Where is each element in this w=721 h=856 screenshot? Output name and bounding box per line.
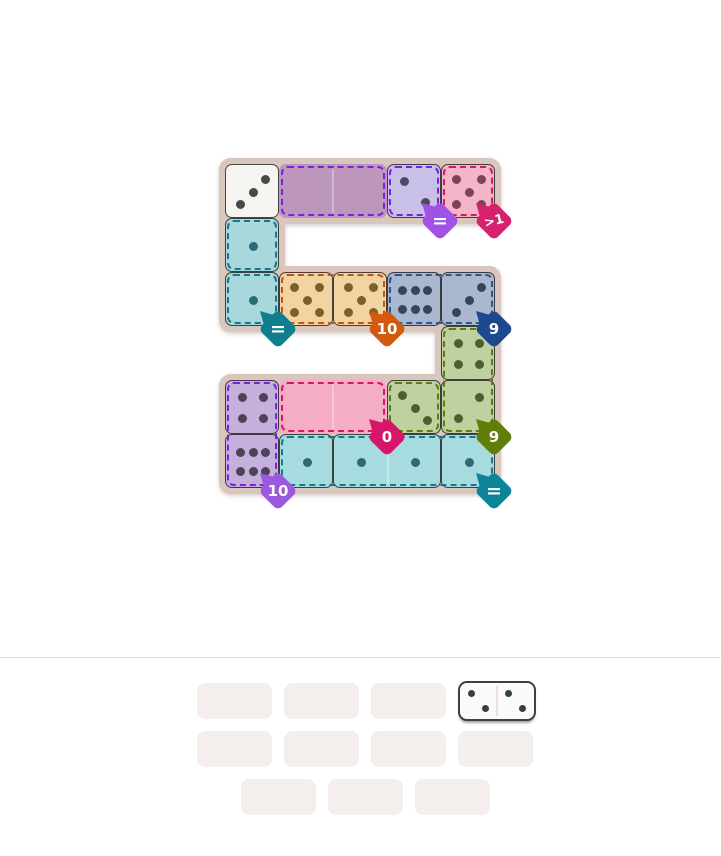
pip xyxy=(236,448,245,457)
constraint-sum-9-olive: 9 xyxy=(474,417,514,457)
tray-slot-1-1[interactable] xyxy=(197,683,272,719)
tray-slot-3-2[interactable] xyxy=(328,779,403,815)
pip xyxy=(519,705,526,712)
tray-domino-right-half xyxy=(497,683,534,719)
tray-slot-1-2[interactable] xyxy=(284,683,359,719)
pip xyxy=(315,308,324,317)
constraint-greater-than-1: >1 xyxy=(474,201,514,241)
tray-slot-1-3[interactable] xyxy=(371,683,446,719)
board-cell-r5c1[interactable] xyxy=(225,380,279,434)
pip xyxy=(465,188,474,197)
board-cell-r2c1[interactable] xyxy=(225,218,279,272)
board-cell-r1c1[interactable] xyxy=(225,164,279,218)
pip xyxy=(249,296,258,305)
pip xyxy=(411,404,420,413)
pip xyxy=(482,705,489,712)
tray-slot-2-3[interactable] xyxy=(371,731,446,767)
pip xyxy=(238,414,247,423)
pip xyxy=(468,690,475,697)
pip xyxy=(249,448,258,457)
pip xyxy=(259,393,268,402)
pip xyxy=(238,393,247,402)
pip xyxy=(475,360,484,369)
pip xyxy=(315,283,324,292)
pip xyxy=(398,391,407,400)
pip xyxy=(249,242,258,251)
pip xyxy=(477,283,486,292)
constraint-sum-10-orange: 10 xyxy=(367,309,407,349)
pip xyxy=(236,467,245,476)
pip xyxy=(357,296,366,305)
badge-label: = xyxy=(474,471,514,511)
badge-label: 10 xyxy=(367,309,407,349)
constraint-sum-10-purple: 10 xyxy=(258,471,298,511)
pip xyxy=(398,286,407,295)
constraint-equal-teal-bottom: = xyxy=(474,471,514,511)
badge-label: 0 xyxy=(367,417,407,457)
pip xyxy=(261,175,270,184)
tray-domino-2-2[interactable] xyxy=(458,681,536,721)
pips-game-area: =>1=1090910= xyxy=(0,0,721,856)
pip xyxy=(454,414,463,423)
constraint-sum-9-navy: 9 xyxy=(474,309,514,349)
badge-label: >1 xyxy=(470,197,518,245)
tray-domino-divider xyxy=(496,686,498,716)
pip xyxy=(249,467,258,476)
pip xyxy=(303,296,312,305)
pip xyxy=(465,296,474,305)
pip xyxy=(475,393,484,402)
pip xyxy=(261,448,270,457)
badge-label: = xyxy=(420,201,460,241)
pip xyxy=(369,283,378,292)
constraint-equal-teal: = xyxy=(258,309,298,349)
pip xyxy=(423,305,432,314)
badge-label: 9 xyxy=(474,417,514,457)
tray-domino-left-half xyxy=(460,683,497,719)
tray-slot-2-2[interactable] xyxy=(284,731,359,767)
cell-seam xyxy=(332,385,334,429)
pip xyxy=(465,458,474,467)
pip xyxy=(400,177,409,186)
board-cell-r1c2-c3[interactable] xyxy=(279,164,387,218)
pip xyxy=(411,305,420,314)
tray-slot-2-1[interactable] xyxy=(197,731,272,767)
pip xyxy=(452,175,461,184)
tray-slot-3-1[interactable] xyxy=(241,779,316,815)
cell-seam xyxy=(332,169,334,213)
pip xyxy=(259,414,268,423)
pip xyxy=(357,458,366,467)
constraint-equal-purple: = xyxy=(420,201,460,241)
badge-label: 10 xyxy=(258,471,298,511)
badge-label: 9 xyxy=(474,309,514,349)
pip xyxy=(452,308,461,317)
pip xyxy=(423,416,432,425)
tray-slot-2-4[interactable] xyxy=(458,731,533,767)
pip xyxy=(423,286,432,295)
pip xyxy=(344,308,353,317)
pip xyxy=(477,175,486,184)
pip xyxy=(454,360,463,369)
pip xyxy=(411,458,420,467)
pip xyxy=(411,286,420,295)
pip xyxy=(454,339,463,348)
constraint-sum-0-pink: 0 xyxy=(367,417,407,457)
pip xyxy=(236,200,245,209)
pip xyxy=(290,283,299,292)
pip xyxy=(303,458,312,467)
tray-slot-3-3[interactable] xyxy=(415,779,490,815)
pip xyxy=(249,188,258,197)
pip xyxy=(505,690,512,697)
badge-label: = xyxy=(258,309,298,349)
pip xyxy=(344,283,353,292)
